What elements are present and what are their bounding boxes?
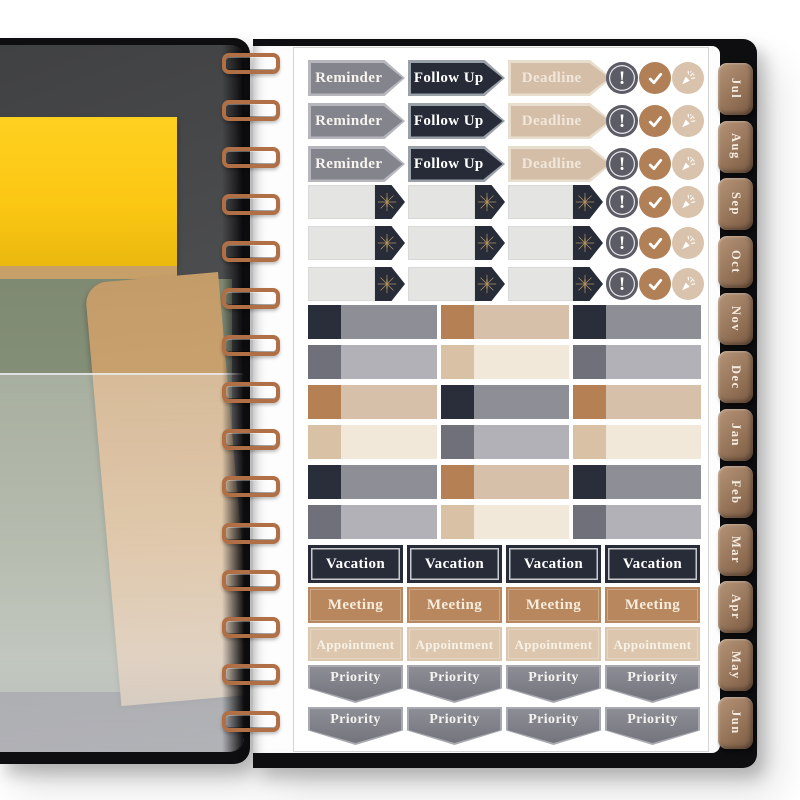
- spiral-coil: [222, 570, 280, 591]
- spiral-coil: [222, 241, 280, 262]
- spiral-coil: [222, 288, 280, 309]
- spiral-binding: [0, 0, 800, 800]
- spiral-coil: [222, 711, 280, 732]
- spiral-coil: [222, 335, 280, 356]
- spiral-coil: [222, 53, 280, 74]
- spiral-coil: [222, 523, 280, 544]
- spiral-coil: [222, 476, 280, 497]
- spiral-coil: [222, 100, 280, 121]
- spiral-coil: [222, 382, 280, 403]
- planner-product-photo: ReminderFollow UpDeadline!ReminderFollow…: [0, 0, 800, 800]
- spiral-coil: [222, 429, 280, 450]
- spiral-coil: [222, 664, 280, 685]
- spiral-coil: [222, 147, 280, 168]
- spiral-coil: [222, 194, 280, 215]
- spiral-coil: [222, 617, 280, 638]
